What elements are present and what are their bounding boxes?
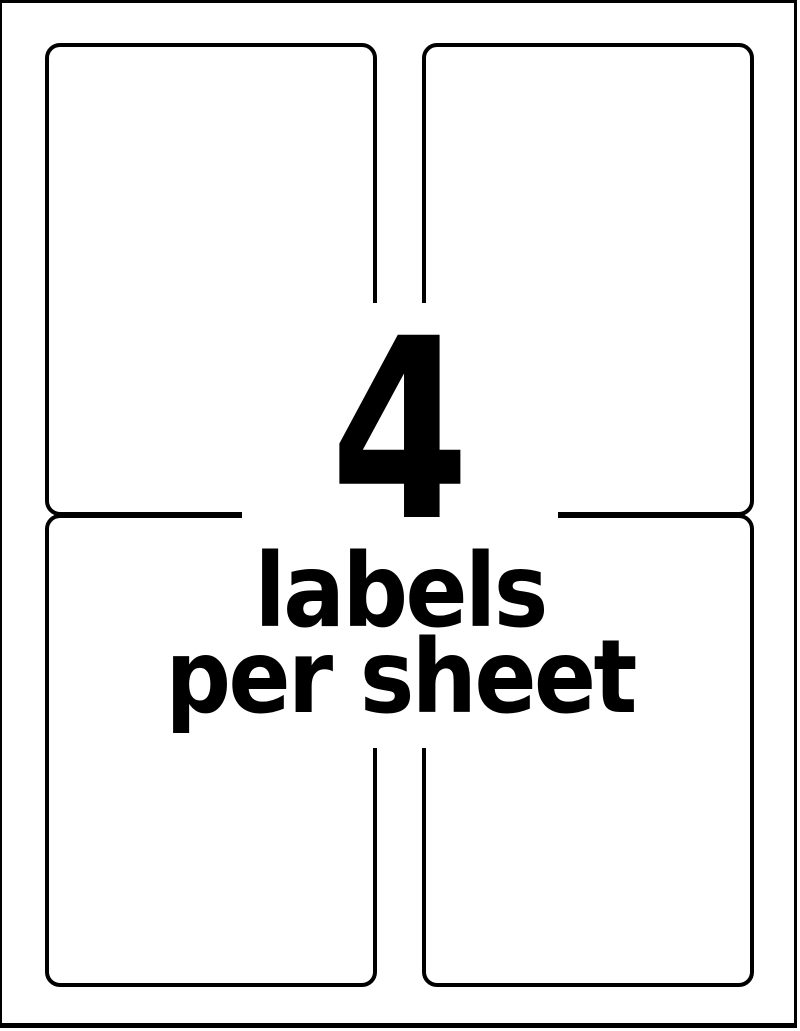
labels-caption: labels per sheet <box>40 549 760 721</box>
caption-line-2: per sheet <box>40 635 760 721</box>
label-sheet-diagram: 4 labels per sheet <box>0 0 800 1031</box>
labels-count: 4 <box>0 306 800 556</box>
labels-count-digit: 4 <box>330 306 469 556</box>
